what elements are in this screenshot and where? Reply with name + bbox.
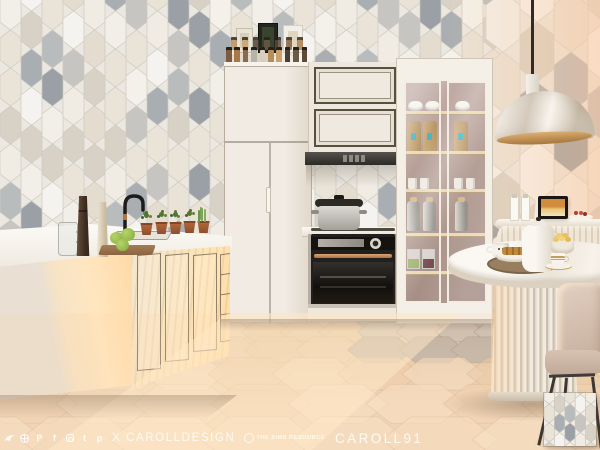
- herb-plant: [187, 211, 192, 216]
- strawberries: [574, 211, 578, 215]
- pot-handle-right: [359, 210, 367, 214]
- swatch-hex-pattern: [544, 393, 596, 446]
- spice-bottle: [285, 47, 291, 63]
- author-watermark-text: CAROLL91: [335, 431, 423, 446]
- tsr-logo-icon: [244, 433, 254, 443]
- creator-watermark-text: X CAROLLDESIGN: [112, 432, 235, 444]
- herb-plant: [201, 208, 203, 221]
- plate: [569, 214, 593, 220]
- spice-bottle: [226, 47, 232, 63]
- range-hood: [305, 152, 403, 165]
- oven-door-reflection: [320, 286, 386, 288]
- cabinet-door: [193, 253, 217, 352]
- green-apple: [116, 239, 129, 251]
- spice-bottle: [260, 47, 266, 63]
- spice-bottle: [276, 47, 282, 63]
- backsplash-shadow: [306, 165, 402, 187]
- kitchen-render-scene: P f t p X CAROLLDESIGN THE SIMS RESOURCE…: [0, 0, 600, 450]
- spice-bottle: [251, 47, 257, 63]
- oven-door-reflection: [320, 276, 386, 278]
- herb-plant: [144, 213, 149, 218]
- milk-bottle: [521, 196, 530, 221]
- pedestal-sunlight: [491, 282, 535, 394]
- spice-bottle: [293, 47, 299, 63]
- tall-pantry-cabinet: [224, 66, 312, 322]
- built-in-oven: [308, 234, 398, 308]
- spice-bottle: [234, 47, 240, 63]
- upper-wall-cabinet: [308, 62, 400, 152]
- pantry-door-handle: [266, 187, 271, 213]
- tsr-brand-badge: THE SIMS RESOURCE: [244, 433, 325, 443]
- recipe-tablet: [538, 196, 568, 219]
- gold-striped-cup: [551, 253, 565, 264]
- upper-cabinet-door-bottom: [314, 109, 396, 147]
- herb-plant: [159, 212, 164, 217]
- saucer: [545, 263, 572, 270]
- cooking-pot: [318, 206, 360, 230]
- pantry-door-split: [225, 141, 311, 143]
- oven-display: [318, 239, 364, 247]
- glass-jar: [58, 222, 78, 256]
- pot-handle-left: [311, 210, 319, 214]
- popcorn: [553, 237, 559, 242]
- upper-cabinet-door-top: [314, 67, 396, 104]
- instagram-icon: [64, 433, 75, 444]
- cabinet-floor-shadow: [220, 319, 496, 331]
- facebook-icon: f: [49, 433, 60, 444]
- pinterest-icon: p: [94, 433, 105, 444]
- tsr-brand-text: THE SIMS RESOURCE: [256, 435, 325, 441]
- cabinet-door: [165, 253, 189, 362]
- watermark-bar: P f t p X CAROLLDESIGN THE SIMS RESOURCE…: [4, 429, 423, 447]
- pendant-lamp-cord: [531, 0, 534, 78]
- tile-pattern-swatch: [544, 393, 596, 446]
- spice-bottle: [302, 47, 308, 63]
- oven-door: [313, 262, 393, 303]
- spice-bottle: [243, 47, 249, 63]
- tsr-bird-icon: [4, 433, 15, 444]
- glass-door-left: [404, 81, 441, 303]
- patreon-icon: P: [34, 433, 45, 444]
- herb-plant: [173, 212, 178, 217]
- chair-seat: [545, 350, 600, 375]
- counter-front-panel: [0, 252, 133, 400]
- spice-bottle: [268, 47, 274, 63]
- globe-icon: [19, 433, 30, 444]
- oven-copper-handle: [314, 254, 392, 258]
- milk-bottle: [510, 196, 519, 221]
- cabinet-door: [137, 253, 161, 371]
- glass-display-cabinet: [396, 58, 493, 324]
- oven-dial: [370, 238, 381, 249]
- tumblr-icon: t: [79, 433, 90, 444]
- pantry-door-seam: [269, 143, 271, 323]
